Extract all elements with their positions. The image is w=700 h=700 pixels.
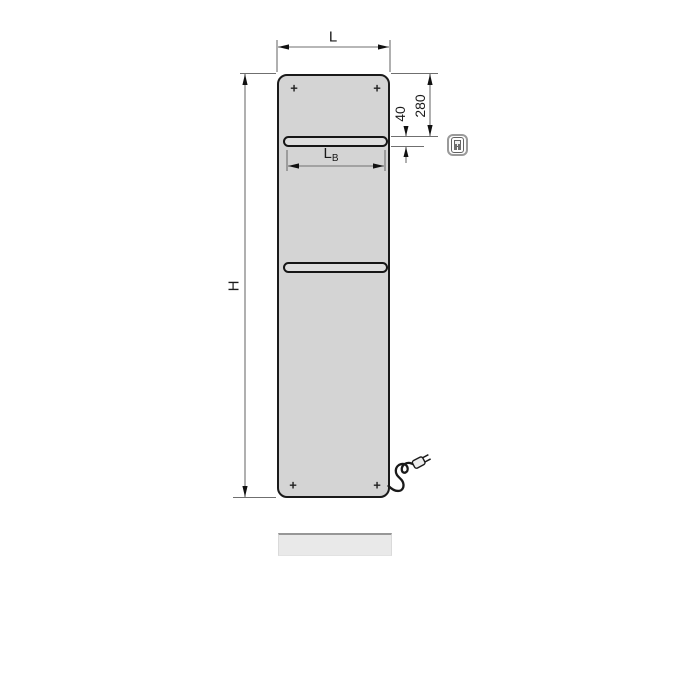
- label-bar-width-LB: LB: [323, 146, 338, 164]
- plug-icon: [412, 453, 432, 469]
- label-offset-280: 280: [413, 94, 427, 117]
- label-height-H: H: [227, 281, 242, 292]
- label-width-L: L: [329, 30, 337, 45]
- label-bar-height-40: 40: [393, 106, 407, 122]
- dimension-overlay: [0, 0, 700, 700]
- label-LB-subscript: B: [332, 153, 339, 164]
- power-cable: [389, 453, 432, 491]
- radiator-dimension-diagram: + + + +: [0, 0, 700, 700]
